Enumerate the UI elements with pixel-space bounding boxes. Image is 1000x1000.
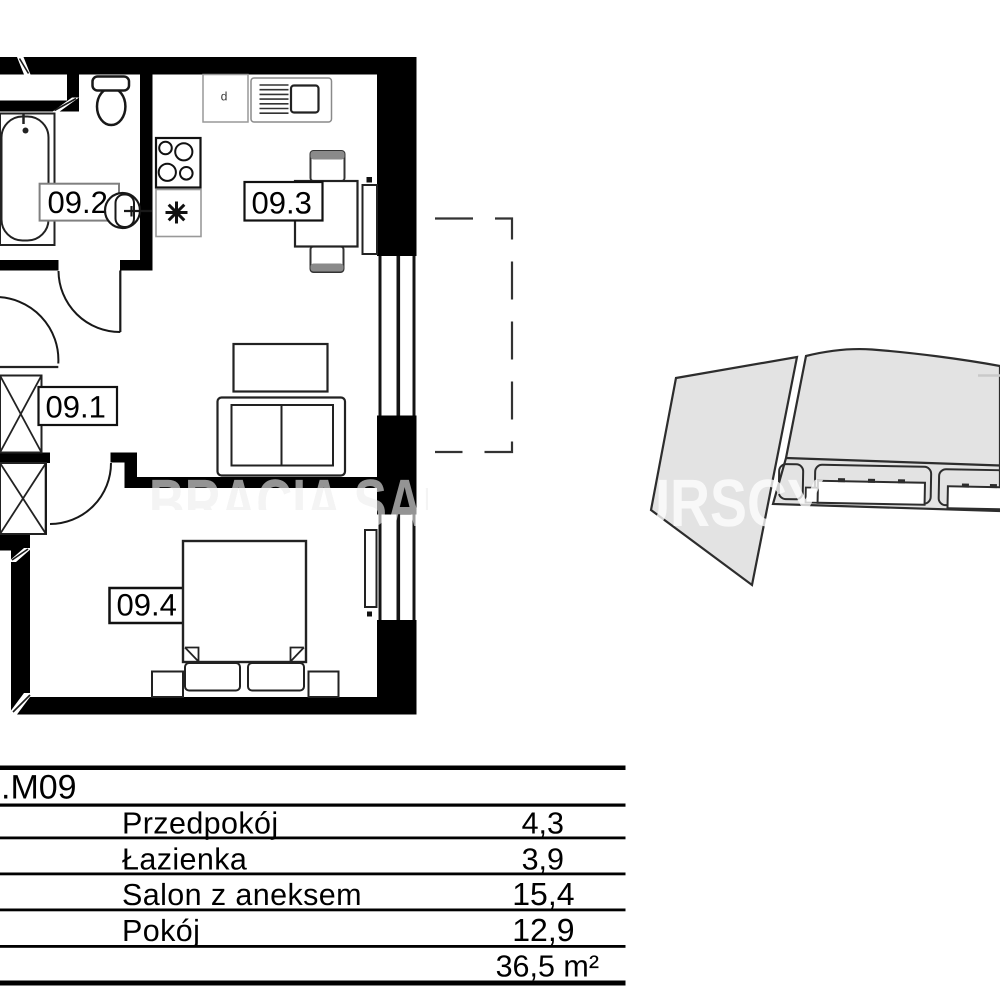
svg-text:Pokój: Pokój [122, 914, 200, 948]
svg-text:15,4: 15,4 [512, 876, 574, 912]
svg-text:12,9: 12,9 [512, 912, 574, 948]
svg-text:SADURSCY: SADURSCY [513, 466, 824, 541]
svg-text:36,5 m²: 36,5 m² [496, 950, 599, 984]
svg-text:09.4: 09.4 [117, 588, 177, 623]
svg-text:.M09: .M09 [1, 769, 77, 807]
svg-text:Przedpokój: Przedpokój [122, 807, 279, 841]
svg-text:p: p [220, 91, 227, 105]
svg-text:09.1: 09.1 [46, 390, 106, 425]
svg-text:Łazienka: Łazienka [122, 843, 247, 877]
svg-text:09.2: 09.2 [48, 185, 108, 220]
svg-text:Salon z aneksem: Salon z aneksem [122, 878, 362, 912]
svg-text:4,3: 4,3 [522, 807, 564, 841]
svg-text:3,9: 3,9 [522, 843, 564, 877]
svg-text:09.3: 09.3 [252, 186, 312, 221]
